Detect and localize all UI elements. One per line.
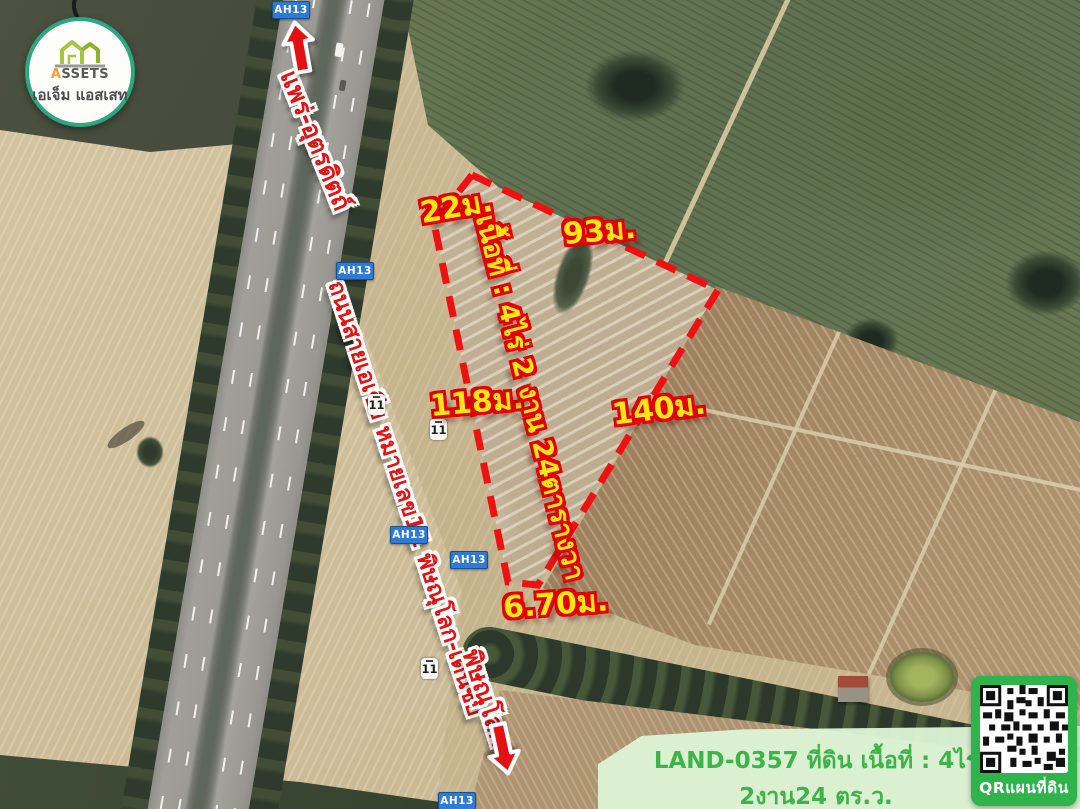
side-length-top: 93ม. bbox=[561, 205, 638, 258]
tree-cluster bbox=[585, 50, 685, 122]
listing-banner-text: LAND-0357 ที่ดิน เนื้อที่ : 4ไร่ 2งาน24 … bbox=[606, 743, 1026, 809]
qr-code-block: QRแผนที่ดิน bbox=[971, 676, 1077, 806]
qr-code-pattern bbox=[980, 685, 1068, 773]
route-shield-11: 11 bbox=[368, 394, 385, 415]
vehicle bbox=[339, 80, 347, 92]
route-badge-label: AH13 bbox=[274, 4, 308, 16]
route-badge-label: AH13 bbox=[392, 529, 426, 541]
lone-tree bbox=[136, 436, 164, 468]
route-shield-label: 11 bbox=[421, 662, 437, 676]
side-length-bottom: 6.70ม. bbox=[501, 577, 609, 631]
route-badge-ah13: AH13 bbox=[336, 262, 374, 280]
brand-accent-letter: A bbox=[51, 67, 62, 82]
route-badge-ah13: AH13 bbox=[438, 792, 476, 809]
pond bbox=[890, 652, 954, 702]
field-divider bbox=[867, 345, 1017, 676]
qr-caption: QRแผนที่ดิน bbox=[971, 775, 1077, 800]
tree-cluster bbox=[1005, 250, 1080, 316]
house-icon bbox=[52, 37, 108, 69]
brand-name-th: เอเจ็ม แอสเสท bbox=[32, 83, 127, 107]
route-badge-label: AH13 bbox=[440, 795, 474, 807]
route-shield-11: 11 bbox=[421, 658, 438, 679]
small-building bbox=[838, 676, 868, 702]
qr-code bbox=[980, 685, 1068, 773]
route-badge-ah13: AH13 bbox=[390, 526, 428, 544]
land-listing-map: AH13 AH13 AH13 AH13 AH13 11 11 11 แพร่-อ… bbox=[0, 0, 1080, 809]
company-logo: ASSETS เอเจ็ม แอสเสท bbox=[25, 17, 135, 127]
field-divider bbox=[707, 295, 857, 626]
route-shield-label: 11 bbox=[368, 398, 384, 412]
listing-title: LAND-0357 ที่ดิน เนื้อที่ : 4ไร่ 2งาน24 … bbox=[606, 743, 1026, 809]
route-badge-label: AH13 bbox=[452, 554, 486, 566]
route-badge-ah13: AH13 bbox=[450, 551, 488, 569]
brand-rest-letters: SSETS bbox=[61, 67, 109, 82]
route-badge-label: AH13 bbox=[338, 265, 372, 277]
brand-name-en: ASSETS bbox=[51, 67, 109, 82]
route-badge-ah13: AH13 bbox=[272, 1, 310, 19]
